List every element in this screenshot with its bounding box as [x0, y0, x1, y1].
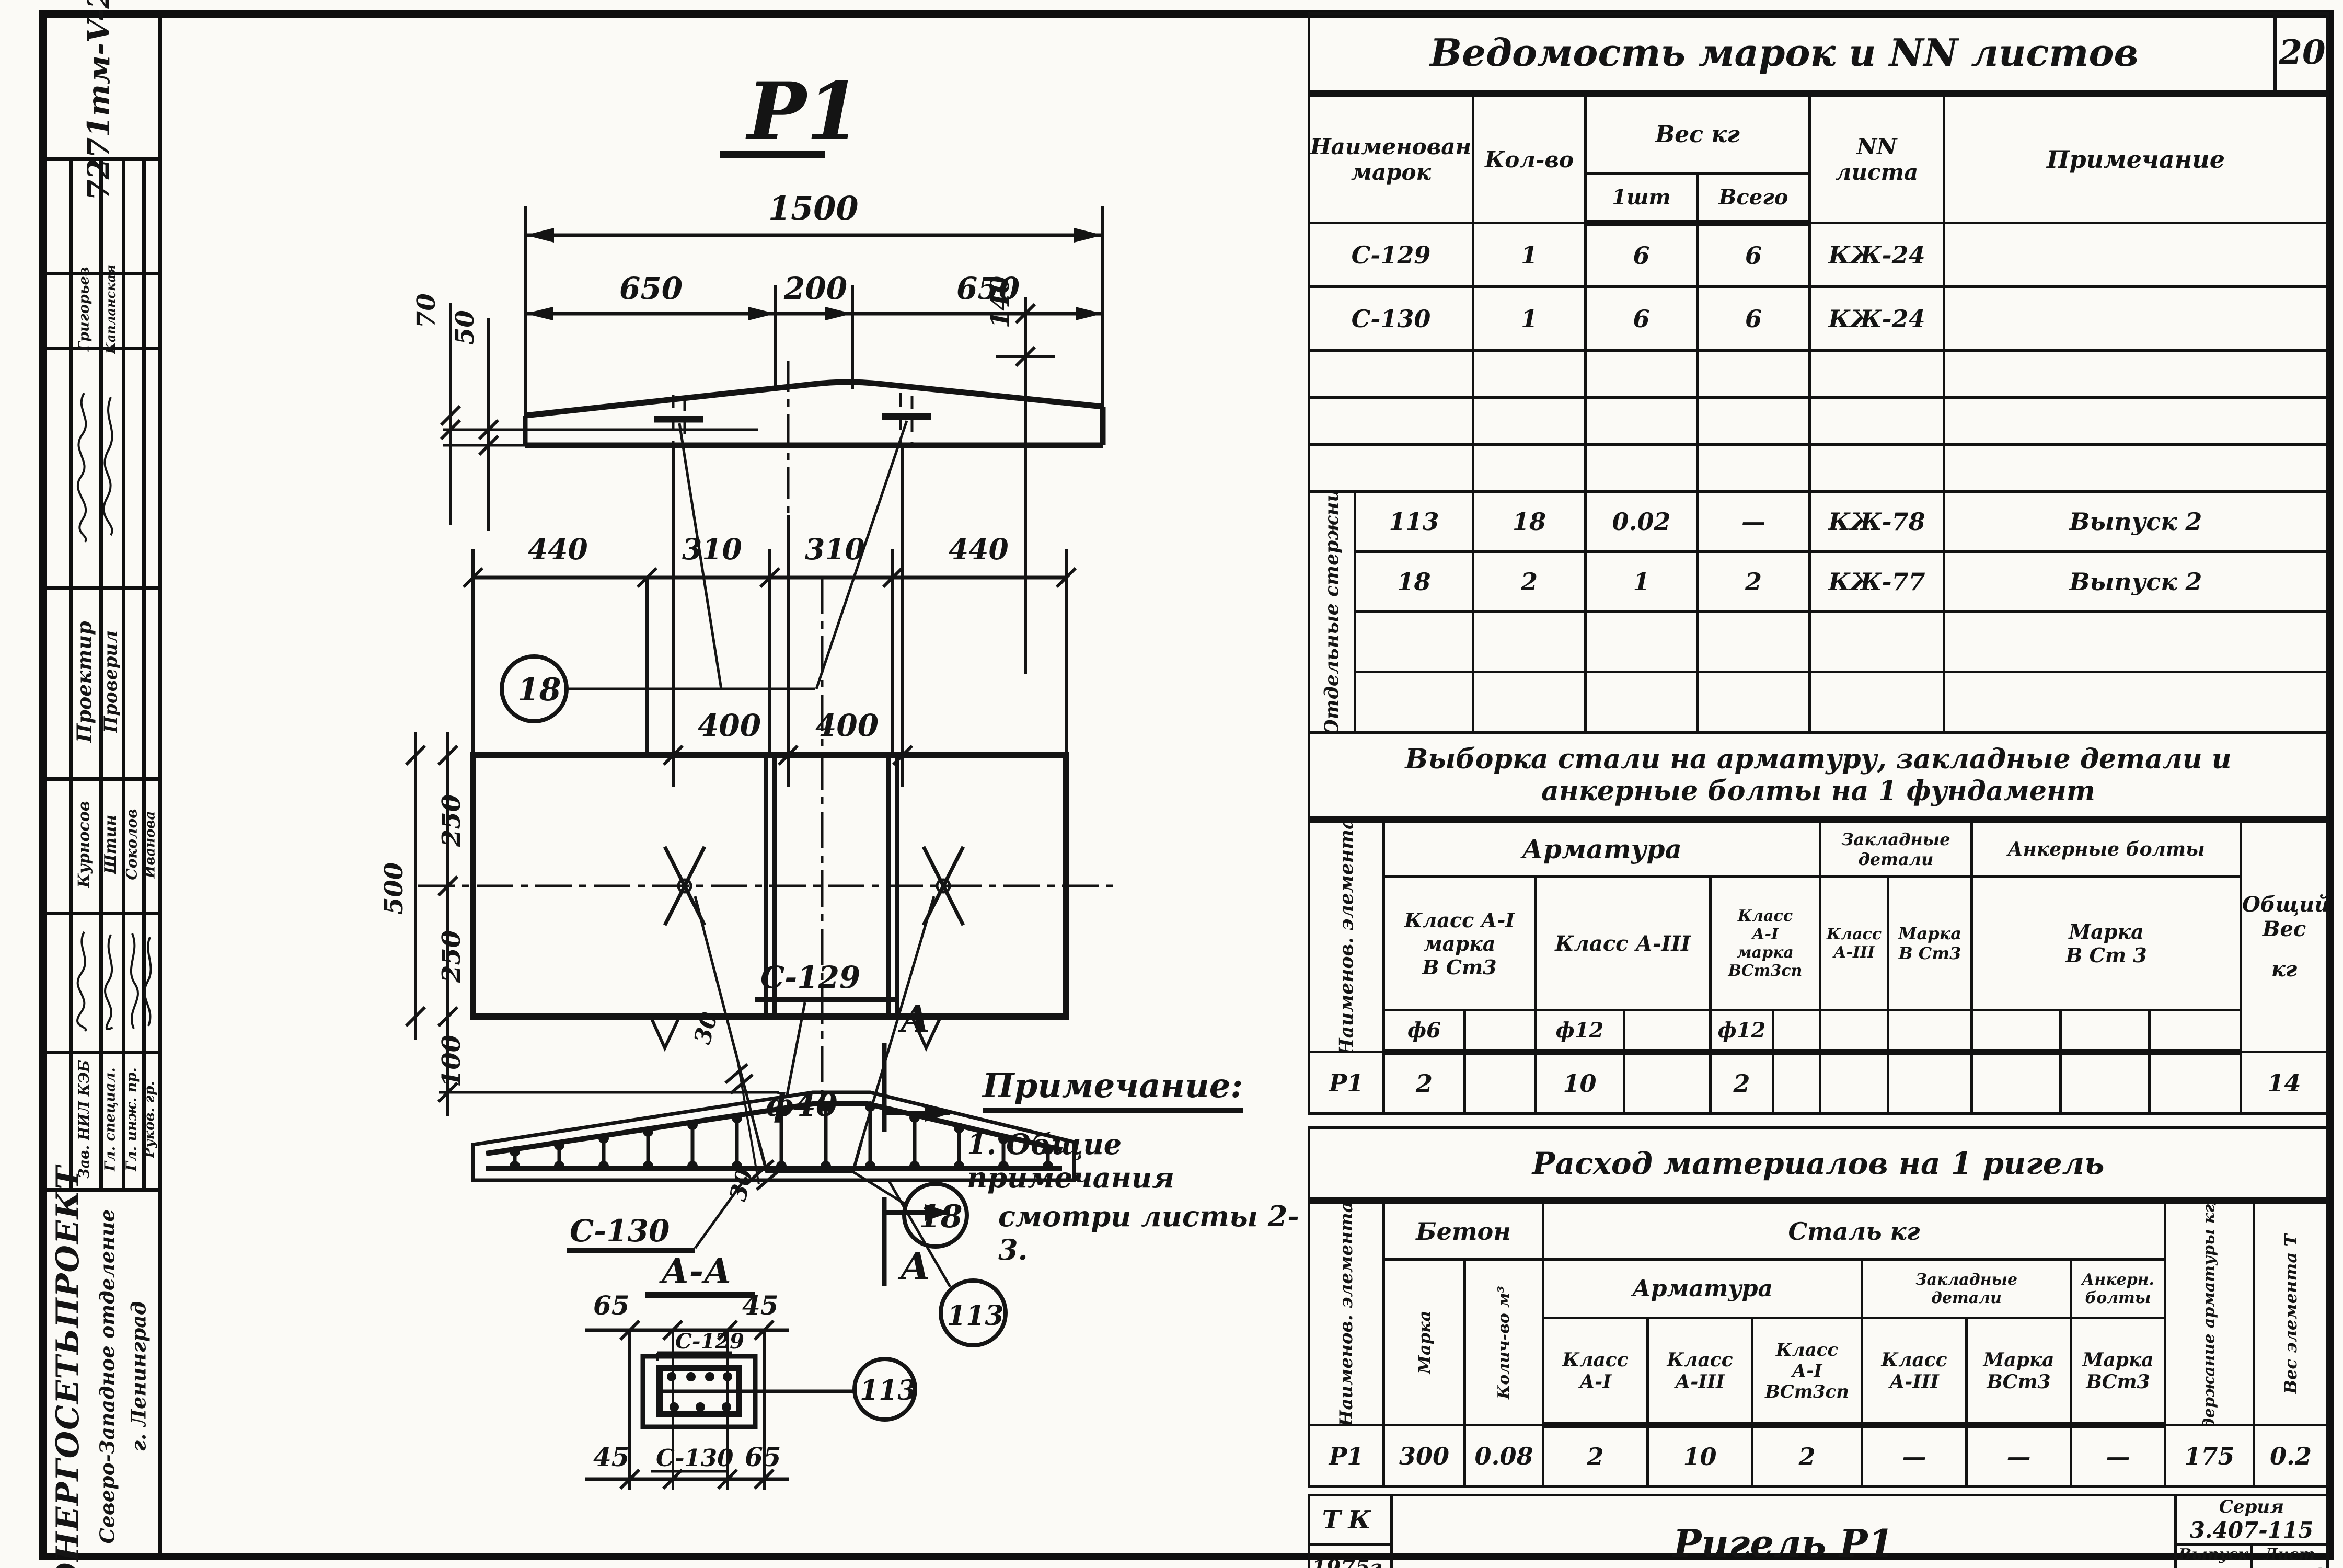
class-cell: Класс	[1863, 1349, 1965, 1371]
bar-qty: 18	[1473, 492, 1586, 552]
empty-cell	[1355, 612, 1473, 672]
callout-18: 18	[517, 672, 561, 708]
mark-w1: 6	[1586, 223, 1698, 287]
materials-table-title: Расход материалов на 1 ригель	[1309, 1128, 2328, 1201]
signature-cell	[99, 912, 122, 1051]
dim-400-left: 400	[698, 708, 761, 743]
anchor-mark: Марка	[1973, 920, 2240, 943]
empty-cell	[1309, 445, 1473, 492]
dim-200: 200	[783, 271, 847, 306]
class-cell: Марка	[1968, 1349, 2070, 1371]
bar-w1: 0.02	[1586, 492, 1698, 552]
dim-310-right: 310	[805, 532, 865, 566]
mat-embed-mark: —	[1967, 1425, 2071, 1487]
doc-number-cell: 7271тм-V-20	[39, 10, 158, 161]
org-cell: ЭНЕРГОСЕТЬПРОЕКТ Северо-Западное отделен…	[39, 1192, 158, 1560]
dim-140: 140	[986, 276, 1015, 328]
dim-45-bl: 45	[593, 1442, 630, 1472]
dim-250-lower: 250	[437, 930, 466, 983]
group-anchor: болты	[2072, 1289, 2164, 1307]
class-cell: А-III	[1863, 1371, 1965, 1393]
table-row	[1309, 672, 2328, 732]
embed-mark: Марка	[1889, 924, 1970, 943]
bar-mark: 113	[1355, 492, 1473, 552]
group-concrete: Бетон	[1384, 1201, 1543, 1260]
col-header-note: Примечание	[1944, 94, 2328, 223]
mark-note	[1944, 287, 2328, 351]
bar-w1: 1	[1586, 552, 1698, 612]
dim-45-tr: 45	[742, 1290, 779, 1321]
issue-number: 5	[2177, 1564, 2250, 1568]
dim-65-br: 65	[745, 1442, 781, 1472]
group-anchor: Анкерн.	[2072, 1271, 2164, 1289]
col-mark: Марка	[1414, 1311, 1434, 1374]
col-header-name: марок	[1310, 159, 1472, 185]
mat-a3: 10	[1648, 1425, 1752, 1487]
class-a1sp: Класс	[1712, 907, 1819, 925]
empty-cell	[1473, 398, 1586, 445]
table-row: 18 2 1 2 КЖ-77 Выпуск 2	[1309, 552, 2328, 612]
bar-wtotal: 2	[1698, 552, 1810, 612]
bar-qty: 2	[1473, 552, 1586, 612]
signature-scribble	[75, 929, 94, 1033]
callout-113: 113	[947, 1300, 1004, 1332]
empty-cell	[1888, 1052, 1972, 1114]
callout-18-plan: 18	[919, 1198, 963, 1235]
empty-cell	[1773, 1052, 1820, 1114]
mark-w1: 6	[1586, 287, 1698, 351]
mark-sheet: КЖ-24	[1810, 287, 1944, 351]
dim-30-bottom: 30	[725, 1166, 759, 1204]
empty-cell	[1473, 445, 1586, 492]
title-block: ТК Ригель Р1 Серия 3.407-115 1975г. Выпу…	[1308, 1494, 2329, 1568]
empty-cell	[1465, 1052, 1536, 1114]
empty-cell	[1944, 445, 2328, 492]
label-c130-section: С-130	[656, 1444, 733, 1472]
empty-cell	[1586, 351, 1698, 398]
class-cell: ВСт3	[2072, 1371, 2164, 1393]
approver-name: Иванова	[142, 811, 158, 878]
sheet-number: КЖ-12	[2253, 1564, 2326, 1568]
empty-cell	[2150, 1052, 2241, 1114]
empty-cell	[1624, 1010, 1711, 1052]
empty-cell	[1972, 1010, 2061, 1052]
class-cell: А-I	[1544, 1371, 1646, 1393]
empty-cell	[1698, 612, 1810, 672]
role-group-lead: Руков. гр.	[142, 1081, 158, 1158]
phi-6: ф6	[1384, 1010, 1465, 1052]
col-header-weight: Вес кг	[1586, 94, 1810, 174]
mark-note	[1944, 223, 2328, 287]
sidebar: 7271тм-V-20 Григорьев Капланская Проекти…	[39, 10, 162, 1560]
dim-250-upper: 250	[437, 794, 466, 847]
empty-cell	[1944, 398, 2328, 445]
anchor-mark: В Ст 3	[1973, 943, 2240, 967]
class-cell: ВСт3	[1968, 1371, 2070, 1393]
series-number: 3.407-115	[2177, 1517, 2326, 1543]
bar-note: Выпуск 2	[1944, 552, 2328, 612]
materials-table: Расход материалов на 1 ригель Наименов. …	[1308, 1126, 2329, 1488]
series-label: Серия	[2219, 1496, 2284, 1517]
mat-anchor: —	[2071, 1425, 2165, 1487]
bar-sheet: КЖ-78	[1810, 492, 1944, 552]
signature-cell	[122, 912, 142, 1051]
empty-cell	[1624, 1052, 1711, 1114]
empty-cell	[1586, 445, 1698, 492]
col-header-sheet: NN	[1811, 134, 1943, 159]
col-element: Наименов. элемента	[1336, 1201, 1357, 1425]
bar-wtotal: —	[1698, 492, 1810, 552]
section-title: А-А	[659, 1251, 732, 1292]
class-a1sp: ВСт3сп	[1712, 962, 1819, 980]
callout-113-section: 113	[860, 1375, 917, 1406]
class-cell: А-III	[1649, 1371, 1751, 1393]
dim-310-left: 310	[682, 532, 742, 566]
phi-12b: ф12	[1711, 1010, 1773, 1052]
group-embed: детали	[1863, 1289, 2070, 1307]
mark-wtotal: 6	[1698, 287, 1810, 351]
signature-scribble	[124, 931, 140, 1031]
steel-total: 14	[2241, 1052, 2328, 1114]
note-block: Примечание: 1. Общие примечания смотри л…	[983, 1066, 1307, 1266]
view1-title: Р1	[745, 65, 861, 157]
dim-440-left: 440	[528, 532, 588, 566]
class-a1sp: марка	[1712, 943, 1819, 962]
bolt-diameter-label: ф40	[766, 1087, 838, 1124]
marks-table-title: Ведомость марок и NN листов	[1309, 14, 2328, 94]
empty-cell	[1473, 612, 1586, 672]
section-letter-top: А	[897, 997, 931, 1041]
embed-class: А-III	[1821, 943, 1887, 962]
steel-v2: 10	[1536, 1052, 1624, 1114]
approver-name: Курносов	[75, 801, 94, 887]
org-code: ТК	[1309, 1495, 1392, 1544]
role-designer: Проектир	[73, 621, 96, 742]
signature-scribble	[102, 393, 120, 539]
group-armature: Арматура	[1543, 1260, 1862, 1318]
embed-class: Класс	[1821, 925, 1887, 943]
dim-1500: 1500	[768, 189, 859, 227]
sidebar-right-rule	[158, 10, 162, 1560]
empty-cell	[1586, 398, 1698, 445]
org-branch: Северо-Западное отделение	[96, 1209, 119, 1543]
empty-cell	[1810, 398, 1944, 445]
signature-scribble	[143, 934, 157, 1028]
empty-cell	[1810, 351, 1944, 398]
dim-650-left: 650	[619, 271, 683, 306]
class-cell: Класс	[1649, 1349, 1751, 1371]
mark-sheet: КЖ-24	[1810, 223, 1944, 287]
empty-cell	[1773, 1010, 1820, 1052]
drawing-views: Р1 1500 650 200 650 70 50 140 400 400 18…	[162, 10, 1308, 1560]
group-embed: Закладные	[1821, 829, 1970, 849]
dim-70: 70	[412, 293, 441, 328]
role-lab-head: Зав. НИЛ КЭБ	[76, 1060, 93, 1179]
empty-cell	[1473, 351, 1586, 398]
bar-sheet: КЖ-77	[1810, 552, 1944, 612]
org-name: ЭНЕРГОСЕТЬПРОЕКТ	[50, 1165, 86, 1568]
designer-name: Григорьев	[76, 267, 93, 352]
dim-500: 500	[379, 862, 409, 915]
empty-cell	[1698, 672, 1810, 732]
dim-65-tl: 65	[593, 1290, 630, 1321]
mat-qty: 0.08	[1465, 1425, 1543, 1487]
checker-name: Капланская	[103, 264, 118, 354]
table-row: Отдельные стержни 113 18 0.02 — КЖ-78 Вы…	[1309, 492, 2328, 552]
empty-cell	[1586, 672, 1698, 732]
sheet-label: Лист	[2264, 1546, 2315, 1564]
empty-cell	[1810, 445, 1944, 492]
class-cell: Класс	[1544, 1349, 1646, 1371]
table-row: С-130 1 6 6 КЖ-24	[1309, 287, 2328, 351]
dim-50: 50	[451, 310, 480, 345]
dim-400-right: 400	[815, 708, 879, 743]
empty-cell	[1944, 672, 2328, 732]
drawing-sheet: 7271тм-V-20 Григорьев Капланская Проекти…	[0, 0, 2343, 1568]
steel-table: Выборка стали на арматуру, закладные дет…	[1308, 732, 2329, 1115]
mark-qty: 1	[1473, 223, 1586, 287]
mat-element: Р1	[1309, 1425, 1384, 1487]
signature-scribble	[74, 388, 95, 545]
empty-cell	[1309, 398, 1473, 445]
page-number-box: 20	[2273, 15, 2327, 90]
empty-cell	[1810, 672, 1944, 732]
class-a1sp: А-I	[1712, 925, 1819, 943]
sheet-title: Ригель Р1	[1392, 1495, 2176, 1568]
table-row: С-129 1 6 6 КЖ-24	[1309, 223, 2328, 287]
embed-mark: В Ст3	[1889, 943, 1970, 963]
mark-wtotal: 6	[1698, 223, 1810, 287]
signature-cell	[69, 912, 99, 1051]
section-label: Отдельные стержни	[1321, 492, 1343, 732]
col-header-sheet: листа	[1811, 159, 1943, 185]
signature-cell	[69, 347, 99, 586]
steel-v3: 2	[1711, 1052, 1773, 1114]
class-cell: ВСт3сп	[1753, 1381, 1861, 1402]
empty-cell	[1820, 1010, 1888, 1052]
col-total: Вес	[2242, 917, 2326, 941]
mark-qty: 1	[1473, 287, 1586, 351]
note-line: 1. Общие примечания	[967, 1127, 1307, 1194]
empty-cell	[1888, 1010, 1972, 1052]
class-a1: Класс А-I	[1385, 908, 1534, 932]
empty-cell	[1820, 1052, 1888, 1114]
dim-440-right: 440	[949, 532, 1009, 566]
table-row	[1309, 351, 2328, 398]
col-header-total: Всего	[1698, 174, 1810, 223]
empty-cell	[1698, 445, 1810, 492]
group-embed: Закладные	[1863, 1271, 2070, 1289]
note-title: Примечание:	[983, 1066, 1243, 1113]
col-header-1pc: 1шт	[1586, 174, 1698, 223]
phi-12: ф12	[1536, 1010, 1624, 1052]
mat-embed-class: —	[1862, 1425, 1967, 1487]
steel-table-title: Выборка стали на арматуру, закладные дет…	[1310, 743, 2326, 775]
table-row	[1309, 445, 2328, 492]
empty-cell	[1810, 612, 1944, 672]
dim-100: 100	[437, 1035, 466, 1087]
empty-cell	[1473, 672, 1586, 732]
signature-cell	[142, 912, 158, 1051]
signature-scribble	[103, 931, 119, 1031]
empty-cell	[1586, 612, 1698, 672]
mat-mark: 300	[1384, 1425, 1465, 1487]
class-a1: В Ст3	[1385, 955, 1534, 979]
empty-cell	[2061, 1052, 2150, 1114]
col-qty: Колич-во м³	[1495, 1286, 1513, 1399]
col-weight: Вес элемента Т	[2281, 1234, 2301, 1394]
empty-cell	[2150, 1010, 2241, 1052]
col-element: Наименов. элемента	[1335, 820, 1357, 1052]
doc-number: 7271тм-V-20	[81, 0, 117, 201]
element-p1: Р1	[1309, 1052, 1384, 1114]
empty-cell	[2061, 1010, 2150, 1052]
role-checker: Проверил	[100, 630, 121, 733]
mark-name: С-130	[1309, 287, 1473, 351]
label-c129: С-129	[760, 960, 860, 995]
mat-a1: 2	[1543, 1425, 1648, 1487]
year: 1975г.	[1309, 1544, 1392, 1568]
group-steel: Сталь кг	[1543, 1201, 2165, 1260]
role-chief-spec: Гл. специал.	[102, 1067, 119, 1171]
col-content: Содержание арматуры кг/м³	[2200, 1201, 2219, 1425]
group-anchor: Анкерные болты	[1972, 820, 2241, 877]
bar-note: Выпуск 2	[1944, 492, 2328, 552]
note-line: смотри листы 2-3.	[998, 1200, 1307, 1266]
class-a3: Класс А-III	[1536, 877, 1711, 1010]
table-row: Р1 300 0.08 2 10 2 — — — 175 0.2	[1309, 1425, 2328, 1487]
mat-weight: 0.2	[2254, 1425, 2328, 1487]
col-header-qty: Кол-во	[1473, 94, 1586, 223]
empty-cell	[1944, 612, 2328, 672]
group-embed: детали	[1821, 849, 1970, 869]
empty-cell	[1972, 1052, 2061, 1114]
table-row: Р1 2 10 2 14	[1309, 1052, 2328, 1114]
empty-cell	[1355, 672, 1473, 732]
label-c130: С-130	[570, 1213, 670, 1249]
steel-table-title: анкерные болты на 1 фундамент	[1310, 775, 2326, 807]
empty-cell	[1309, 351, 1473, 398]
col-header-name: Наименование	[1310, 134, 1472, 159]
mat-content: 175	[2165, 1425, 2254, 1487]
class-cell: Марка	[2072, 1349, 2164, 1371]
empty-cell	[1698, 398, 1810, 445]
class-cell: Класс	[1753, 1340, 1861, 1361]
label-c129-section: С-129	[675, 1329, 744, 1354]
marks-table: Ведомость марок и NN листов Наименование…	[1308, 12, 2329, 733]
table-row	[1309, 612, 2328, 672]
class-cell: А-I	[1753, 1361, 1861, 1381]
section-letter-bottom: А	[897, 1244, 931, 1288]
role-chief-eng: Гл. инж. пр.	[124, 1067, 140, 1171]
col-total: Общий	[2242, 892, 2326, 917]
mat-a1sp: 2	[1752, 1425, 1862, 1487]
class-a1: марка	[1385, 932, 1534, 955]
group-armature: Арматура	[1384, 820, 1820, 877]
org-city: г. Ленинград	[127, 1301, 151, 1451]
approver-name: Штин	[101, 815, 120, 874]
signature-cell	[99, 347, 122, 586]
steel-v1: 2	[1384, 1052, 1465, 1114]
approver-name: Соколов	[123, 809, 141, 880]
empty-cell	[1698, 351, 1810, 398]
empty-cell	[1465, 1010, 1536, 1052]
bar-mark: 18	[1355, 552, 1473, 612]
col-total: кг	[2242, 957, 2326, 982]
table-row	[1309, 398, 2328, 445]
mark-name: С-129	[1309, 223, 1473, 287]
issue-label: Выпуск	[2178, 1546, 2248, 1564]
empty-cell	[1944, 351, 2328, 398]
page-number: 20	[2279, 33, 2325, 72]
